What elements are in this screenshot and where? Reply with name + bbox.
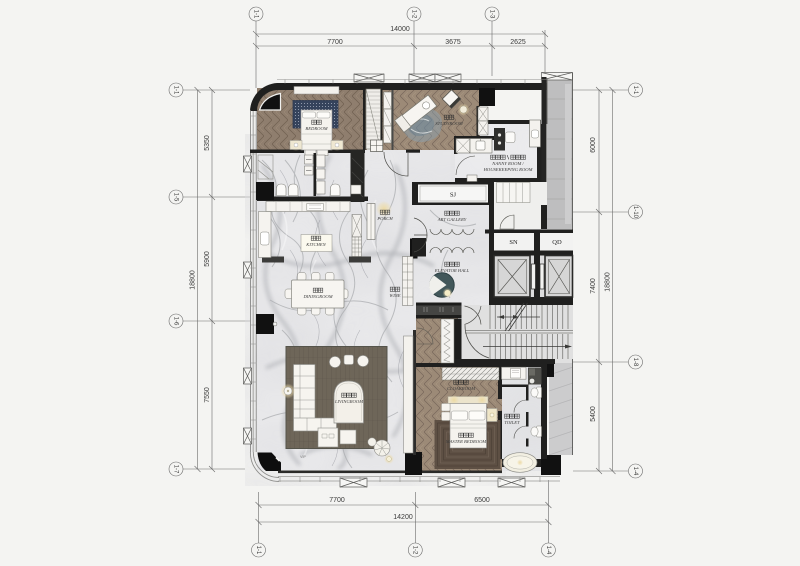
svg-text:SN: SN xyxy=(509,239,518,246)
svg-text:STUDYROOM: STUDYROOM xyxy=(435,121,463,126)
svg-text:1-1: 1-1 xyxy=(632,86,638,95)
svg-text:7700: 7700 xyxy=(329,497,345,504)
svg-text:1-6: 1-6 xyxy=(172,317,178,326)
svg-text:SJ: SJ xyxy=(450,192,457,199)
svg-text:DININGROOM: DININGROOM xyxy=(302,294,333,299)
svg-text:HOUSEKEEPING ROOM: HOUSEKEEPING ROOM xyxy=(483,167,534,172)
svg-text:1-2: 1-2 xyxy=(410,10,416,19)
svg-text:ART GALLERY: ART GALLERY xyxy=(437,217,467,222)
svg-text:6000: 6000 xyxy=(590,137,597,153)
svg-text:1-10: 1-10 xyxy=(632,206,638,219)
svg-text:18800: 18800 xyxy=(190,270,197,290)
svg-text:MASTER BEDROOM: MASTER BEDROOM xyxy=(445,439,488,444)
svg-text:1-8: 1-8 xyxy=(632,358,638,367)
svg-text:14000: 14000 xyxy=(390,26,410,33)
svg-text:LIVINGROOM: LIVINGROOM xyxy=(334,399,364,404)
svg-text:1-1: 1-1 xyxy=(252,10,258,19)
svg-text:KITCHEN: KITCHEN xyxy=(305,242,326,247)
svg-text:1-1: 1-1 xyxy=(172,86,178,95)
svg-text:BEDROOM: BEDROOM xyxy=(305,126,328,131)
svg-text:WINE: WINE xyxy=(389,293,400,298)
svg-text:1-1: 1-1 xyxy=(255,546,261,555)
svg-text:CLOAKROOM: CLOAKROOM xyxy=(447,386,476,391)
svg-text:6500: 6500 xyxy=(474,497,490,504)
svg-text:1-5: 1-5 xyxy=(172,193,178,202)
svg-text:5350: 5350 xyxy=(204,135,211,151)
svg-text:1-3: 1-3 xyxy=(488,10,494,19)
svg-text:14200: 14200 xyxy=(393,514,413,521)
svg-text:3675: 3675 xyxy=(445,39,461,46)
svg-text:ELEVATOR HALL: ELEVATOR HALL xyxy=(434,268,470,273)
svg-text:7550: 7550 xyxy=(204,387,211,403)
svg-text:5900: 5900 xyxy=(204,251,211,267)
svg-text:2625: 2625 xyxy=(510,39,526,46)
svg-text:1-4: 1-4 xyxy=(632,467,638,476)
svg-text:1-2: 1-2 xyxy=(412,546,418,555)
svg-text:PORCH: PORCH xyxy=(376,216,393,221)
svg-text:NANNY ROOM /: NANNY ROOM / xyxy=(491,161,524,166)
svg-text:VIP: VIP xyxy=(300,455,306,459)
svg-text:5400: 5400 xyxy=(590,406,597,422)
svg-text:7700: 7700 xyxy=(327,39,343,46)
svg-text:QD: QD xyxy=(552,239,562,246)
svg-text:1-4: 1-4 xyxy=(545,546,551,555)
svg-text:TOILET: TOILET xyxy=(504,420,520,425)
svg-text:1-7: 1-7 xyxy=(172,465,178,474)
svg-text:18800: 18800 xyxy=(605,272,612,292)
svg-text:7400: 7400 xyxy=(590,278,597,294)
